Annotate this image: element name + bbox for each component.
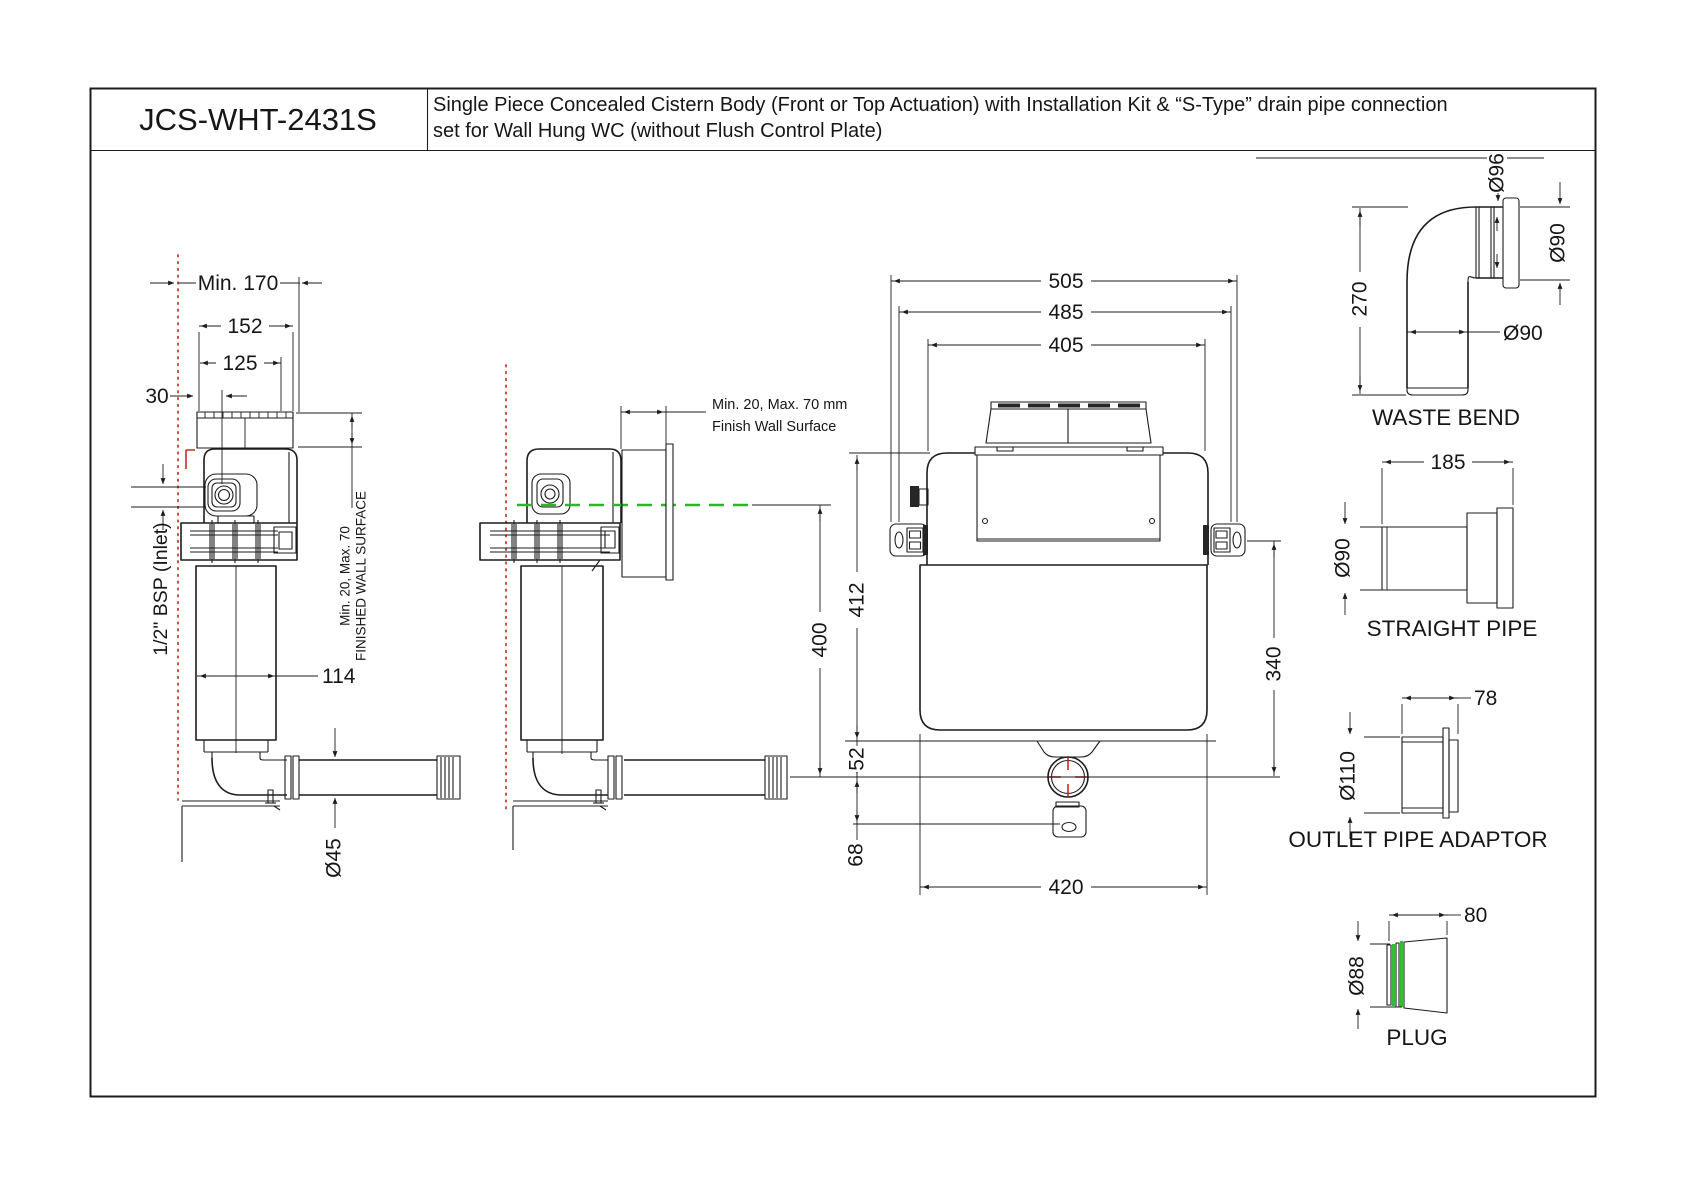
dim-420: 420 [1048, 876, 1083, 899]
front-outlet [1037, 741, 1100, 837]
side-wall-plate [182, 801, 280, 862]
straight-pipe-shape [1382, 508, 1513, 608]
section-wall-note-1: Min. 20, Max. 70 mm [712, 397, 847, 413]
description-line1: Single Piece Concealed Cistern Body (Fro… [433, 94, 1448, 116]
dim-152: 152 [227, 315, 262, 338]
dim-505: 505 [1048, 270, 1083, 293]
drawing-frame [91, 89, 1596, 1097]
front-body-lower [920, 565, 1207, 730]
dim-125: 125 [222, 352, 257, 375]
front-inlet-stub [910, 486, 919, 507]
plug-label: PLUG [1386, 1025, 1447, 1050]
outlet-adaptor-dim-lines [1364, 698, 1471, 813]
outlet-adaptor-shape [1402, 728, 1458, 818]
side-wall-note-2: FINISHED WALL SURFACE [354, 491, 369, 661]
section-wall-plate [513, 801, 608, 850]
section-cistern-body [527, 449, 621, 523]
section-inlet-boss [532, 474, 570, 514]
dim-412: 412 [846, 582, 869, 617]
part-straight-pipe: 185 Ø90 STRAIGHT PIPE [1332, 451, 1538, 641]
section-dim-arrows [624, 412, 820, 774]
front-body-upper [927, 453, 1208, 565]
dim-min-170: Min. 170 [198, 272, 279, 295]
dim-68: 68 [845, 843, 868, 866]
dim-dia-96: Ø96 [1486, 153, 1509, 193]
dim-pipe-dia-45: Ø45 [323, 838, 346, 878]
model-number: JCS-WHT-2431S [139, 102, 377, 137]
dim-dia-110: Ø110 [1337, 751, 1360, 801]
waste-bend-label: WASTE BEND [1372, 405, 1520, 430]
dim-52: 52 [846, 747, 869, 770]
dim-114: 114 [322, 665, 356, 688]
title-block: JCS-WHT-2431S Single Piece Concealed Cis… [139, 94, 1447, 142]
front-right-bracket [1203, 524, 1245, 556]
front-view: 505 485 405 412 52 68 340 420 [790, 270, 1286, 899]
section-bracket [480, 520, 620, 571]
part-plug: 80 Ø88 PLUG [1346, 904, 1488, 1050]
dim-dia-88: Ø88 [1346, 956, 1369, 996]
waste-bend-dim-lines [1352, 207, 1570, 395]
dim-80: 80 [1464, 904, 1487, 927]
dim-340: 340 [1263, 646, 1286, 681]
straight-pipe-arrows [1345, 462, 1510, 615]
drawing-canvas: JCS-WHT-2431S Single Piece Concealed Cis… [0, 0, 1684, 1190]
plug-shape [1387, 938, 1447, 1013]
dim-405: 405 [1048, 334, 1083, 357]
plug-seal-green [1392, 944, 1395, 1006]
section-wall-note-2: Finish Wall Surface [712, 419, 836, 435]
section-flush-tank [521, 566, 603, 758]
dim-dia-90-bottom: Ø90 [1503, 322, 1543, 345]
dim-485: 485 [1048, 301, 1083, 324]
dim-dia-90: Ø90 [1332, 538, 1355, 578]
plug-seal-green-2 [1400, 941, 1403, 1007]
outlet-adaptor-label: OUTLET PIPE ADAPTOR [1288, 827, 1547, 852]
dim-78: 78 [1474, 687, 1497, 710]
front-left-bracket [890, 524, 928, 556]
straight-pipe-dim-lines [1360, 462, 1513, 590]
side-flush-tank [196, 566, 276, 758]
dim-dia-90-side: Ø90 [1547, 223, 1570, 263]
section-threaded-sleeve [622, 450, 666, 577]
part-waste-bend: Ø96 Ø90 270 Ø90 WASTE BEND [1256, 153, 1570, 430]
dim-270: 270 [1349, 281, 1372, 316]
side-cistern-body [204, 449, 297, 523]
side-view: Min. 170 152 125 30 114 Ø45 1/2" BSP (In… [131, 255, 460, 878]
straight-pipe-label: STRAIGHT PIPE [1367, 616, 1538, 641]
side-inlet-boss [205, 474, 257, 523]
front-access-panel [977, 455, 1160, 541]
description-line2: set for Wall Hung WC (without Flush Cont… [433, 120, 882, 142]
side-wall-note-1: Min. 20, Max. 70 [338, 526, 353, 626]
dim-30: 30 [145, 385, 168, 408]
dim-400: 400 [809, 622, 832, 657]
part-outlet-pipe-adaptor: 78 Ø110 OUTLET PIPE ADAPTOR [1288, 687, 1547, 852]
front-top-grille [975, 402, 1163, 455]
dim-185: 185 [1430, 451, 1465, 474]
side-outlet-pipe [212, 756, 460, 803]
waste-bend-shape [1407, 198, 1519, 395]
section-dim-lines [621, 406, 820, 777]
wall-edge-mark-red [186, 450, 195, 469]
inlet-label: 1/2" BSP (Inlet) [150, 522, 172, 655]
section-outlet-pipe [533, 756, 787, 803]
waste-bend-arrows [1360, 182, 1560, 391]
side-bracket [181, 520, 297, 563]
